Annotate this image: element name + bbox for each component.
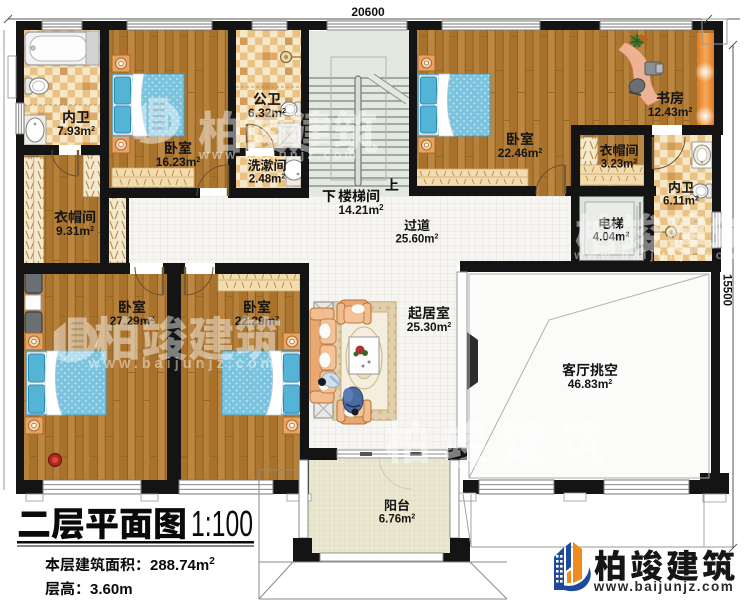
svg-text:www.baijunjz.com: www.baijunjz.com <box>593 579 735 594</box>
svg-text:46.83m2: 46.83m2 <box>568 377 613 391</box>
svg-text:2.48m2: 2.48m2 <box>249 174 286 186</box>
svg-text:12.43m2: 12.43m2 <box>648 105 693 119</box>
svg-text:15500: 15500 <box>721 274 733 306</box>
svg-text:www.baijunjz.com: www.baijunjz.com <box>573 248 742 262</box>
svg-text:22.46m2: 22.46m2 <box>498 146 543 160</box>
svg-text:www.baijunjz.com: www.baijunjz.com <box>198 147 359 162</box>
svg-text:3.23m2: 3.23m2 <box>601 159 638 171</box>
svg-text:6.76m2: 6.76m2 <box>379 514 416 526</box>
svg-text:288.74m2: 288.74m2 <box>150 556 215 574</box>
svg-text:16.23m2: 16.23m2 <box>156 155 201 169</box>
svg-text:25.60m2: 25.60m2 <box>396 234 439 246</box>
svg-text:www.baijunjz.com: www.baijunjz.com <box>87 356 277 372</box>
svg-text:25.30m2: 25.30m2 <box>407 320 452 334</box>
svg-text:14.21m2: 14.21m2 <box>338 203 384 217</box>
svg-text:6.11m2: 6.11m2 <box>663 196 699 208</box>
svg-text:9.31m2: 9.31m2 <box>56 224 94 238</box>
svg-text:20600: 20600 <box>351 5 385 19</box>
svg-text:www.baijunjz.com: www.baijunjz.com <box>456 456 633 471</box>
svg-text:7.93m2: 7.93m2 <box>57 124 95 138</box>
svg-text:3.60m: 3.60m <box>90 581 133 598</box>
svg-text:1:100: 1:100 <box>191 503 253 544</box>
